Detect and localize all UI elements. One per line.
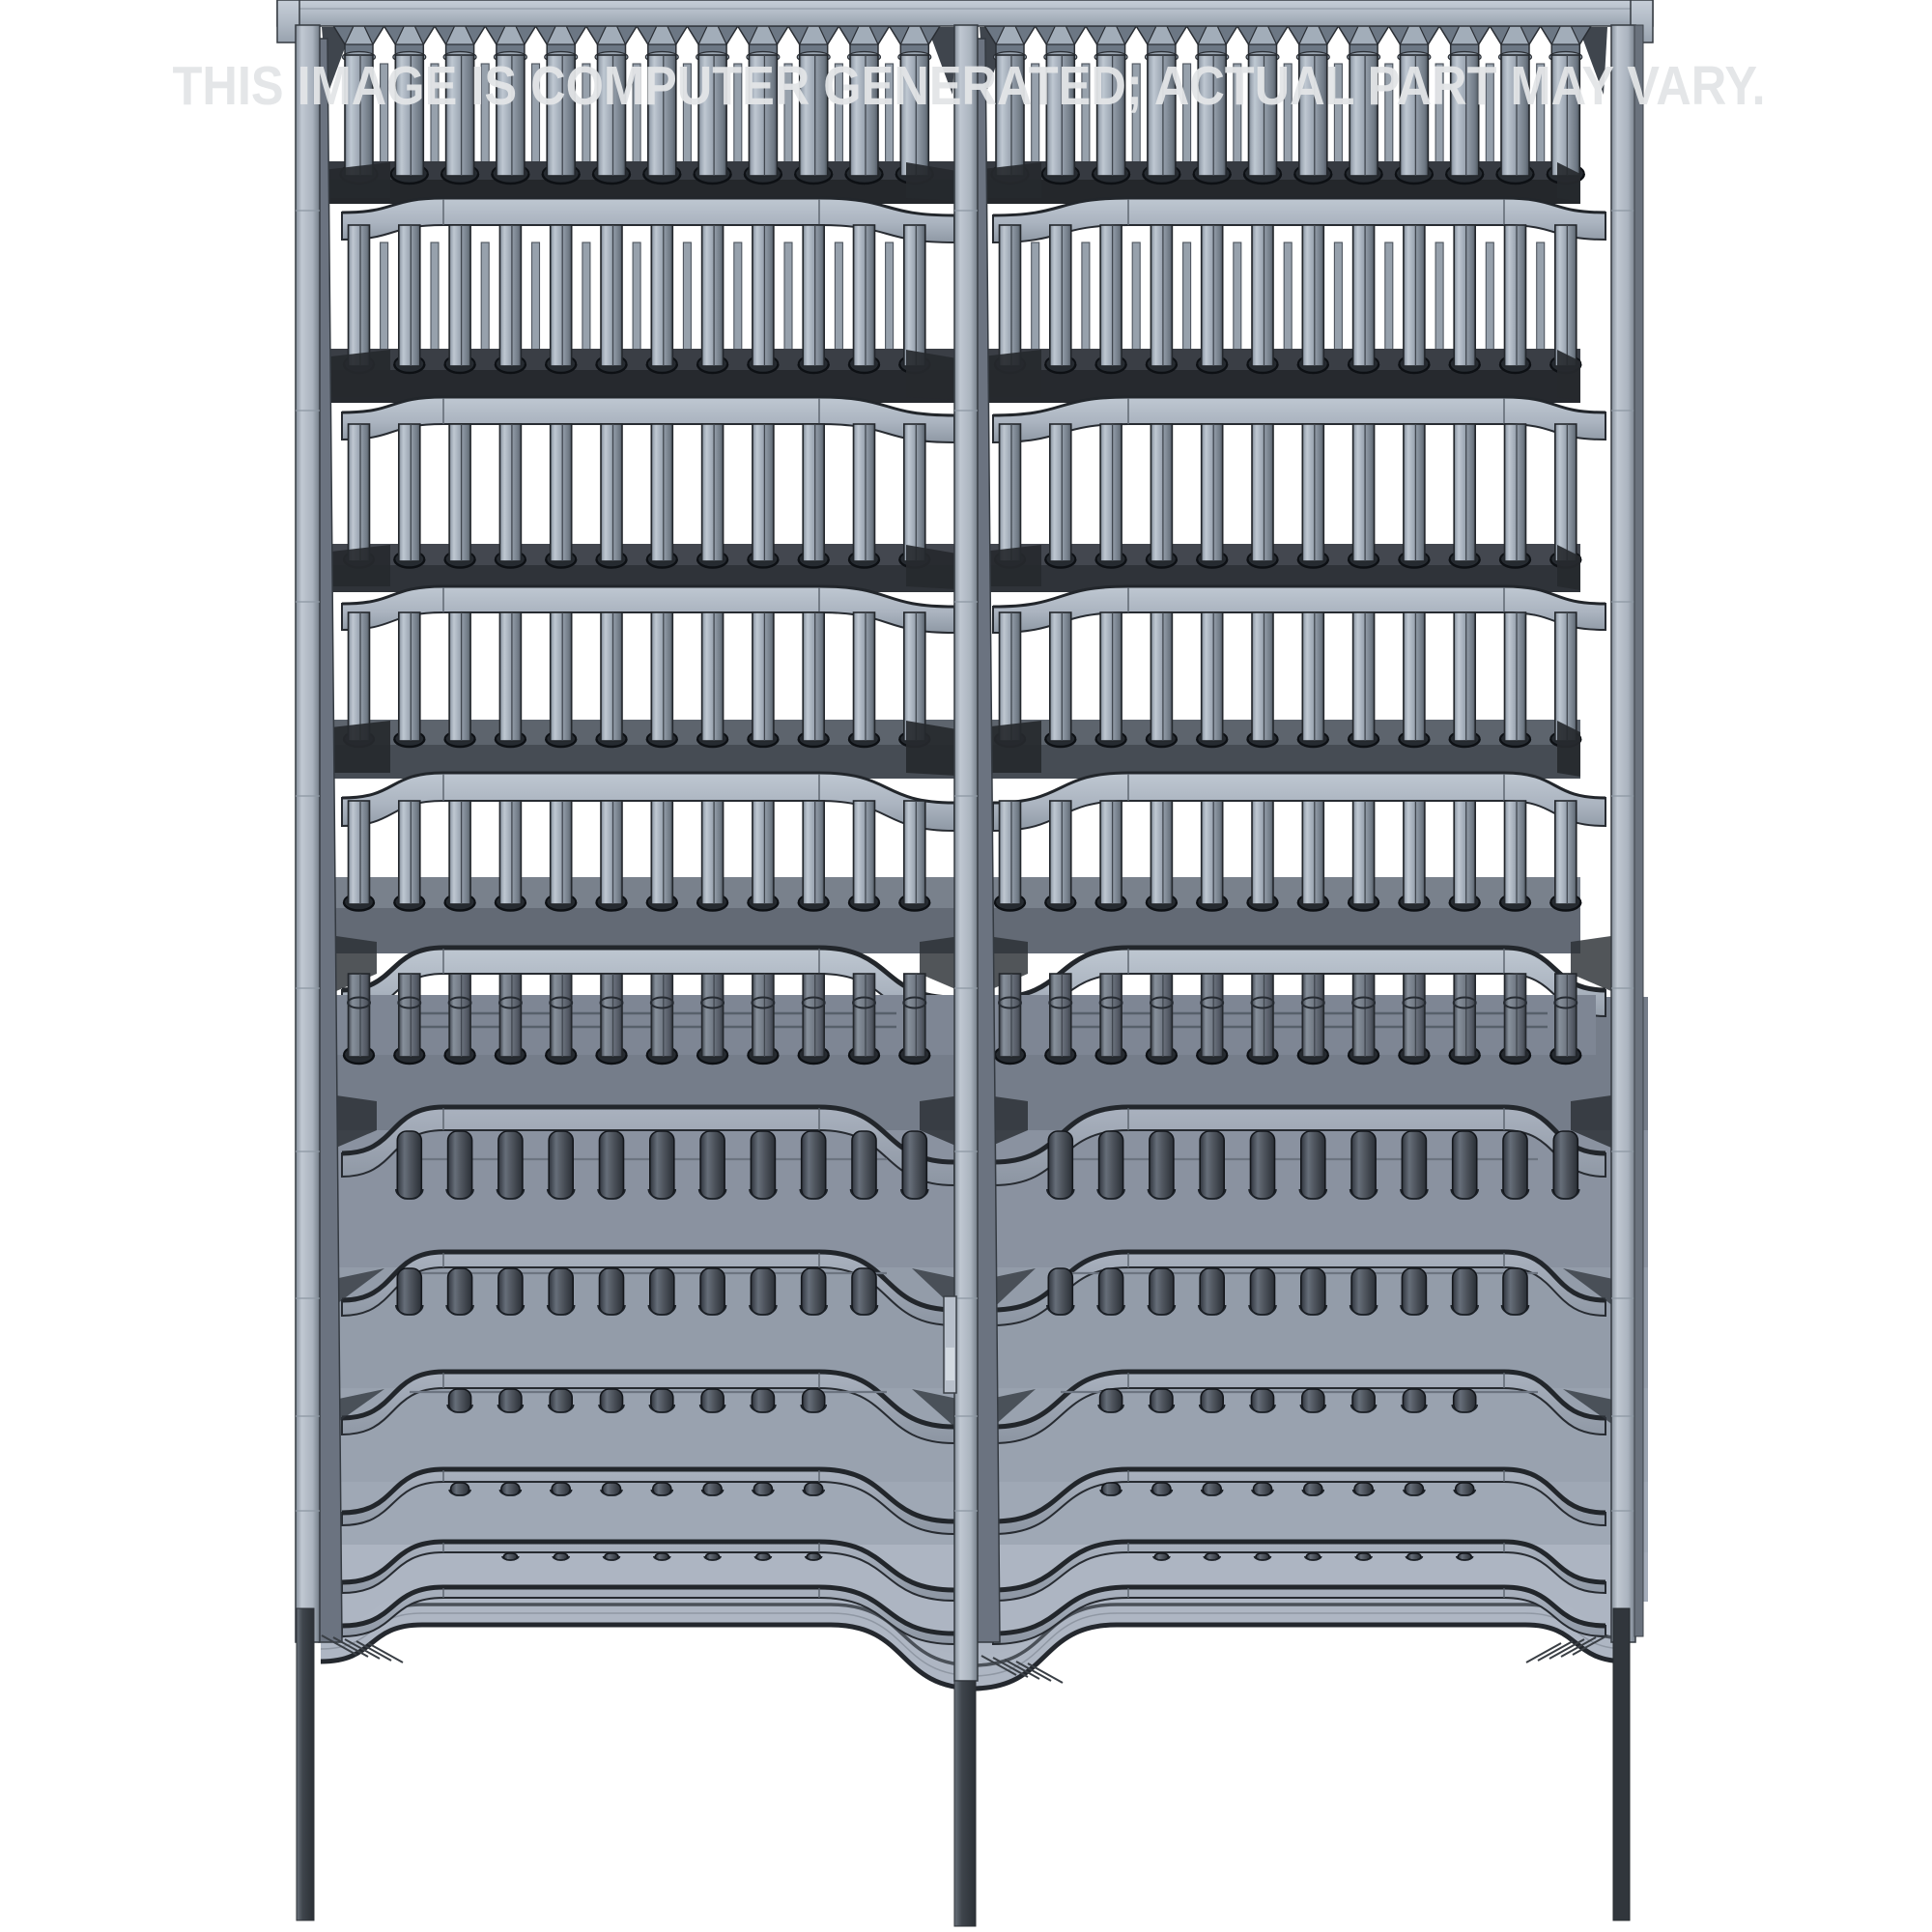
svg-text:THIS IMAGE IS COMPUTER GENERAT: THIS IMAGE IS COMPUTER GENERATED; ACTUAL… [173, 55, 1766, 117]
